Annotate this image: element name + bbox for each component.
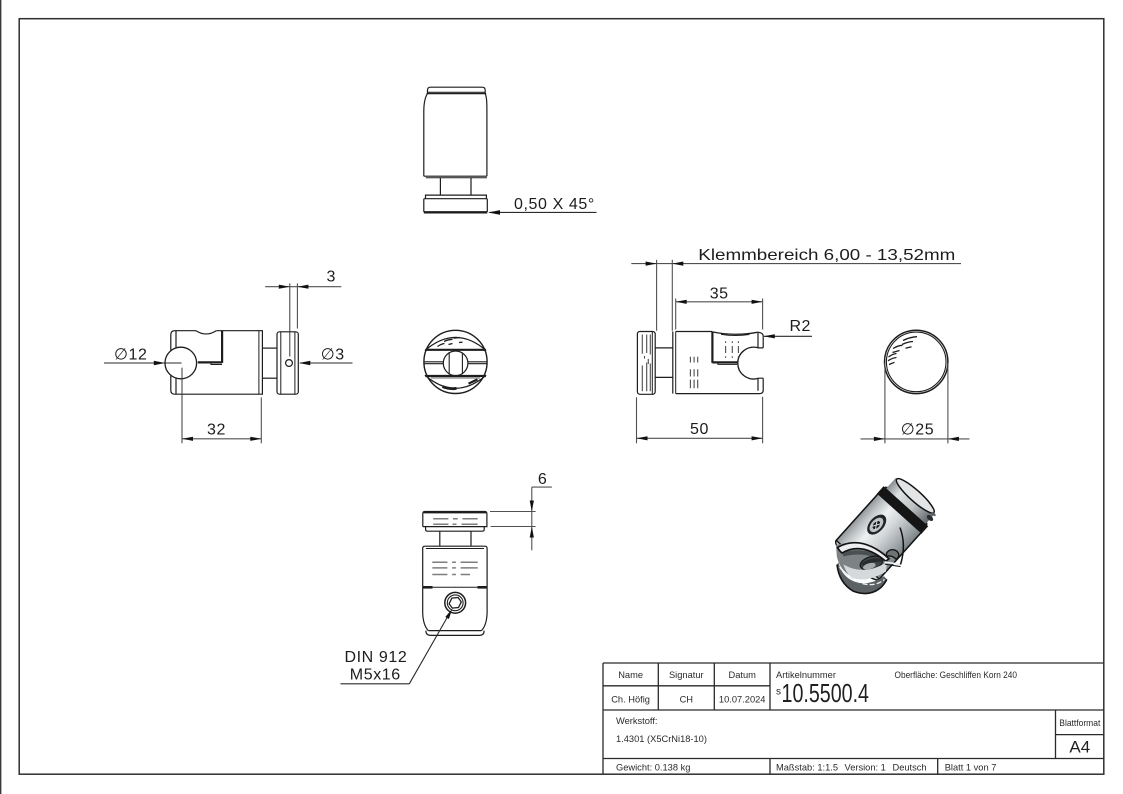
svg-text:Deutsch: Deutsch [893, 762, 927, 772]
svg-text:1.4301 (X5CrNi18-10): 1.4301 (X5CrNi18-10) [616, 734, 707, 744]
svg-text:0,50 X 45°: 0,50 X 45° [514, 196, 595, 213]
svg-text:3: 3 [327, 269, 336, 286]
svg-text:∅25: ∅25 [901, 422, 935, 439]
svg-text:M5x16: M5x16 [350, 667, 401, 684]
svg-text:∅12: ∅12 [114, 347, 148, 364]
svg-text:Signatur: Signatur [669, 670, 704, 680]
svg-text:Ch. Höfig: Ch. Höfig [611, 694, 650, 704]
svg-text:Name: Name [618, 670, 643, 680]
svg-text:10.07.2024: 10.07.2024 [719, 694, 766, 704]
svg-text:Oberfläche: Geschliffen Korn: Oberfläche: Geschliffen Korn 240 [895, 670, 1018, 680]
svg-text:s: s [776, 687, 781, 698]
svg-text:32: 32 [207, 421, 226, 438]
svg-text:35: 35 [710, 286, 729, 303]
svg-text:Klemmbereich 6,00 - 13,52mm: Klemmbereich 6,00 - 13,52mm [698, 247, 955, 264]
svg-text:Blattformat: Blattformat [1059, 718, 1100, 728]
svg-text:Gewicht: 0.138 kg: Gewicht: 0.138 kg [616, 762, 690, 772]
svg-text:A4: A4 [1069, 738, 1090, 757]
svg-text:Version: 1: Version: 1 [845, 762, 886, 772]
svg-text:CH: CH [680, 694, 693, 704]
svg-text:Datum: Datum [729, 670, 757, 680]
svg-text:R2: R2 [790, 318, 811, 335]
svg-text:10.5500.4: 10.5500.4 [782, 678, 870, 708]
svg-text:50: 50 [690, 421, 709, 438]
svg-text:Werkstoff:: Werkstoff: [616, 716, 658, 726]
svg-text:Maßstab: 1:1.5: Maßstab: 1:1.5 [776, 762, 838, 772]
svg-text:Blatt 1 von 7: Blatt 1 von 7 [945, 762, 997, 772]
svg-text:DIN 912: DIN 912 [344, 649, 407, 666]
svg-text:∅3: ∅3 [321, 347, 345, 364]
svg-text:6: 6 [538, 471, 547, 488]
